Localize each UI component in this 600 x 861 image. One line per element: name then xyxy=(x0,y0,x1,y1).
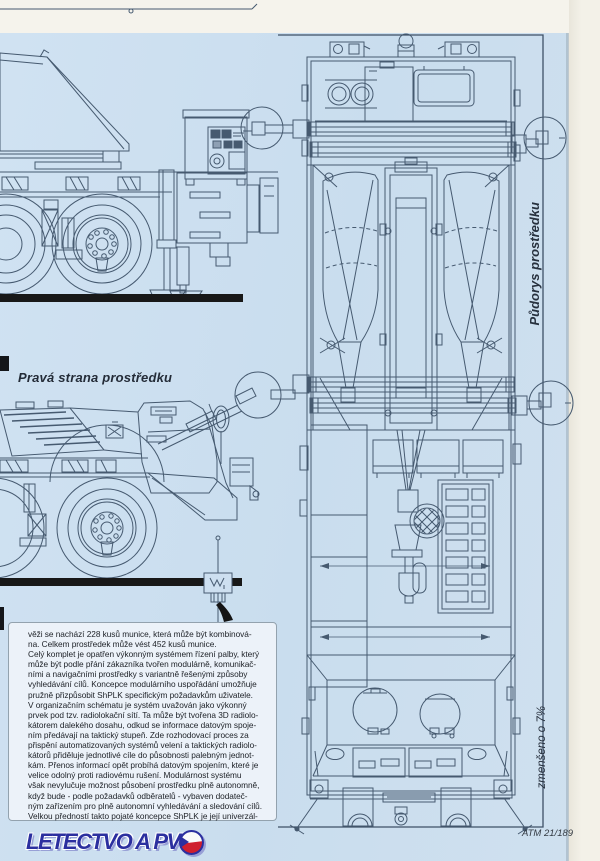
engine-louvres xyxy=(0,401,142,456)
rear-gun-rails xyxy=(308,377,516,413)
logo-text: LETECTVO A PV xyxy=(26,829,180,855)
rear-body-panels xyxy=(300,425,521,687)
suspension xyxy=(42,200,82,259)
vehicle-emblem xyxy=(106,422,123,438)
scale-note: zmenšeno o 7% xyxy=(536,706,548,788)
rear-bumper xyxy=(290,780,532,834)
folded-antenna-edge xyxy=(0,4,257,13)
roof-hatches xyxy=(330,34,479,57)
central-column xyxy=(380,158,442,430)
plan-view-caption: Půdorys prostředku xyxy=(527,202,542,326)
outrigger-jacks xyxy=(150,170,202,300)
magazine-page: Pravá strana prostředku Půdorys prostřed… xyxy=(0,0,600,861)
periscope-mast xyxy=(392,490,426,603)
wheel xyxy=(52,194,152,294)
antenna-paddle xyxy=(213,406,229,464)
hull-side xyxy=(0,425,237,520)
wheel-partial xyxy=(0,478,44,578)
rear-grating xyxy=(438,480,493,613)
side-view-caption: Pravá strana prostředku xyxy=(18,370,172,385)
article-text-box: věži se nachází 228 kusů munice, která m… xyxy=(8,622,277,821)
section-marker-bottom xyxy=(0,607,4,630)
radar-fan-right xyxy=(444,172,499,402)
radar-fan-left xyxy=(323,172,378,402)
front-left-gun-barrel xyxy=(241,107,309,149)
radar-panel xyxy=(0,50,129,169)
ground-line xyxy=(0,294,243,302)
front-gun-rails xyxy=(308,122,516,157)
radar-section-frame xyxy=(307,165,515,430)
engine-deck xyxy=(302,62,520,161)
surveying-marker xyxy=(204,536,233,622)
section-marker-top xyxy=(0,356,9,371)
article-text: věži se nachází 228 kusů munice, která m… xyxy=(28,629,263,821)
wheel xyxy=(57,478,157,578)
front-bumper xyxy=(230,458,259,500)
page-reference: ATM 21/189 xyxy=(522,828,573,839)
publication-logo: LETECTVO A PV xyxy=(26,829,204,855)
czech-flag-icon xyxy=(179,830,204,855)
armored-cab xyxy=(138,401,233,498)
rear-compartment xyxy=(302,655,520,777)
side-view-front-drawing xyxy=(0,370,290,615)
front-right-gun-barrel xyxy=(512,117,566,159)
